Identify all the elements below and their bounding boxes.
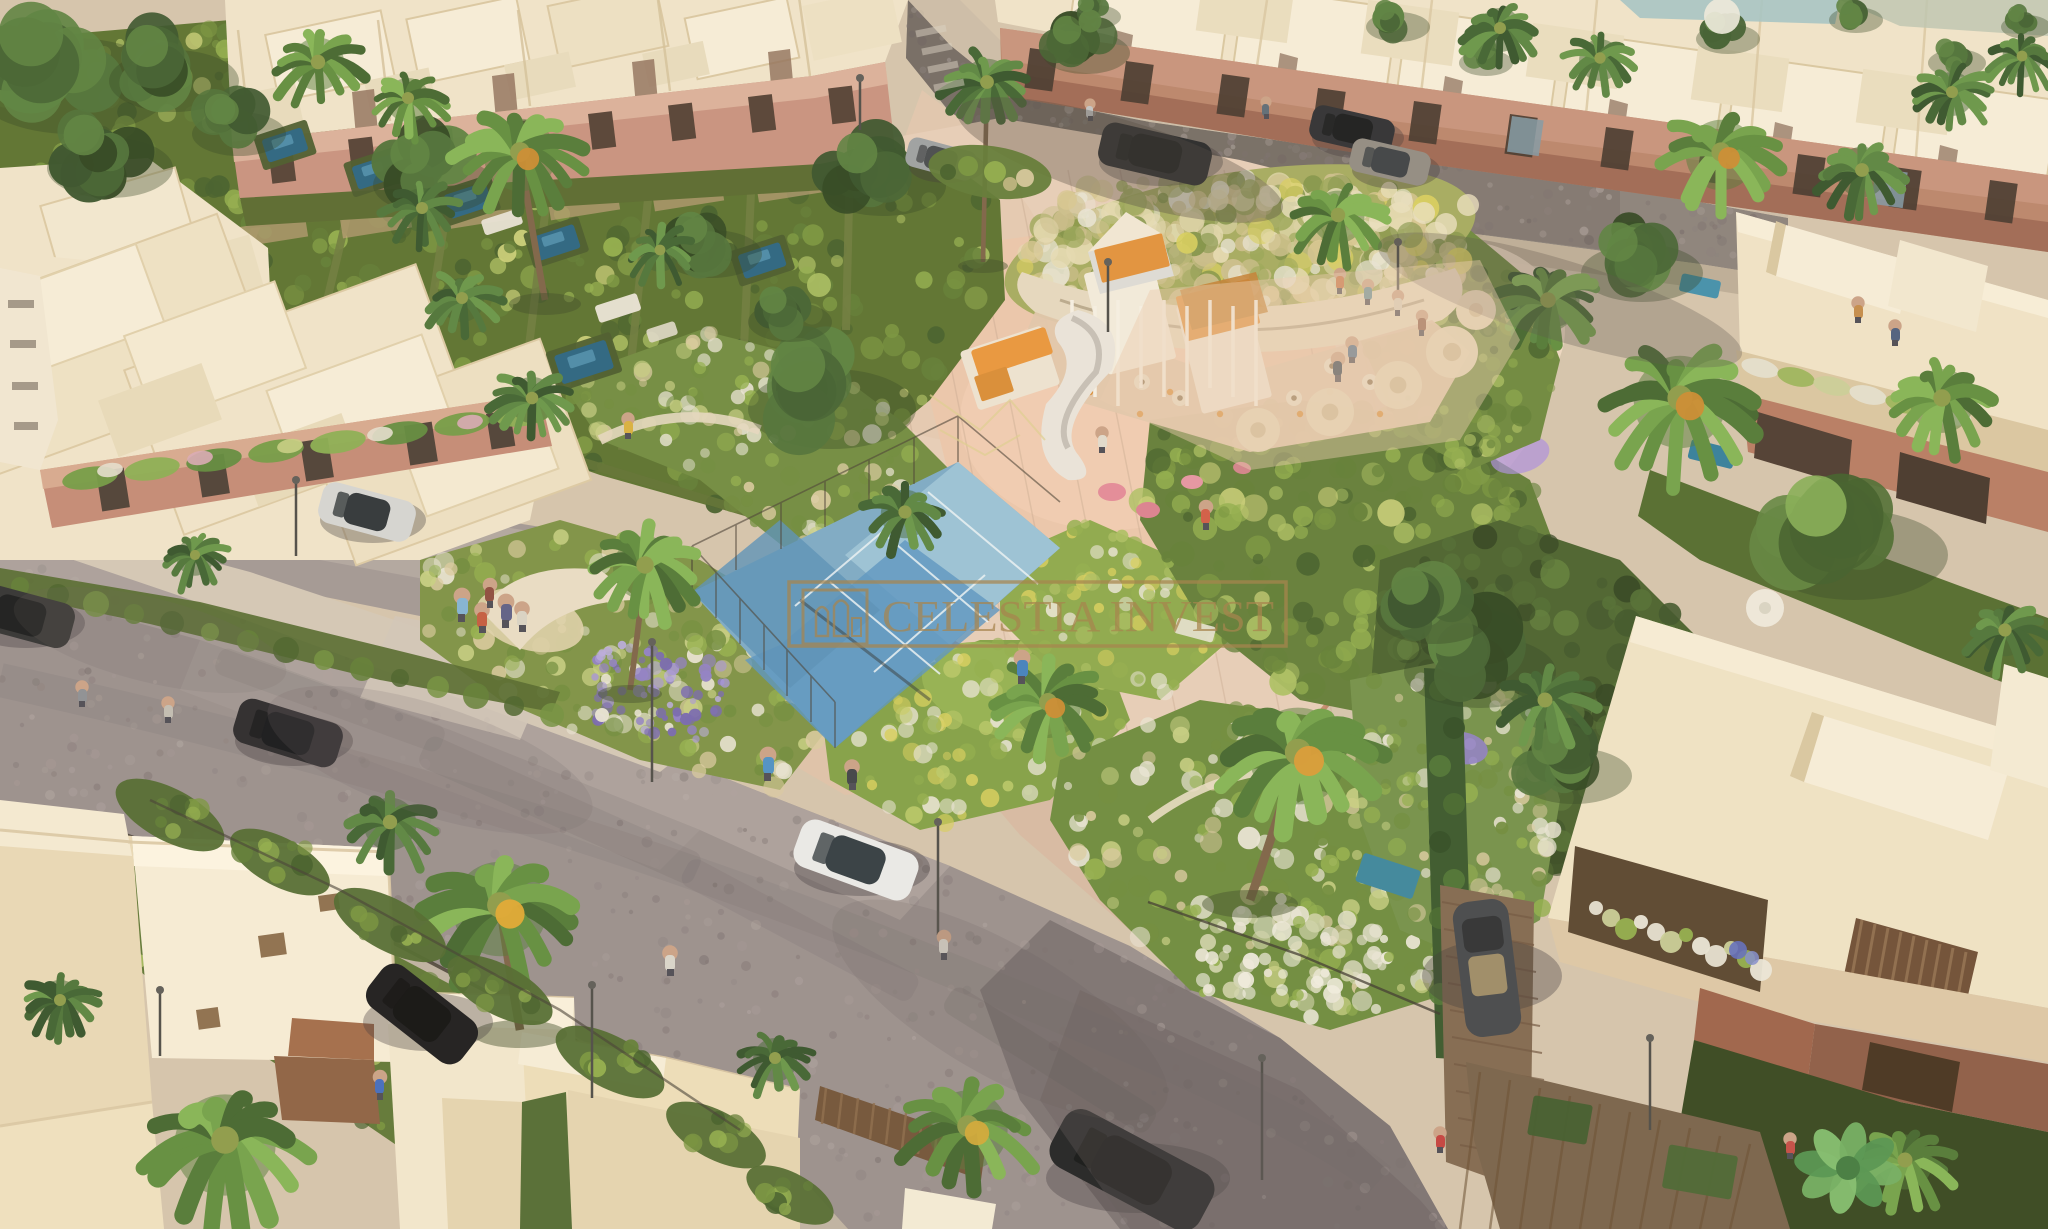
svg-text:CELESTIA INVEST: CELESTIA INVEST (882, 592, 1274, 641)
